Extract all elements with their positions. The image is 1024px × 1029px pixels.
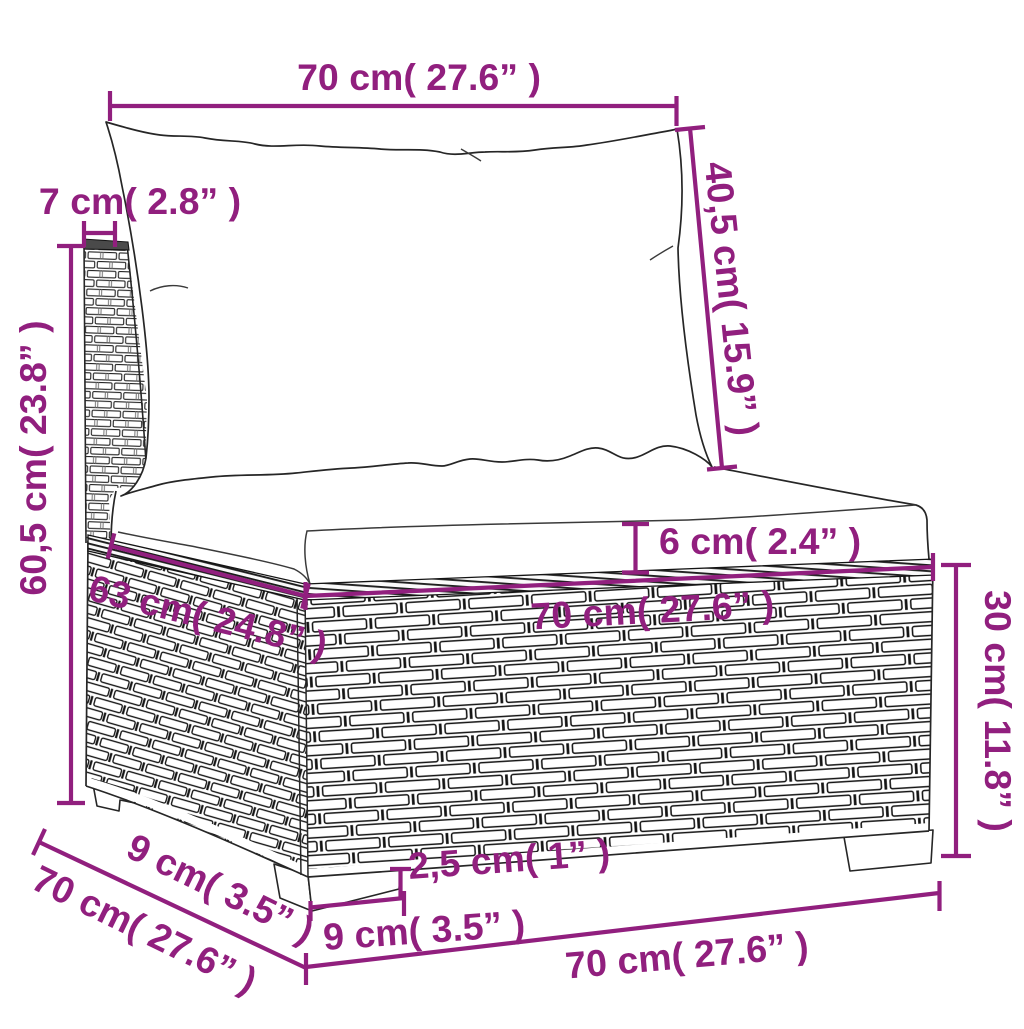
svg-text:30 cm( 11.8” ): 30 cm( 11.8” ) — [977, 590, 1019, 832]
svg-text:6 cm( 2.4” ): 6 cm( 2.4” ) — [659, 520, 861, 562]
svg-text:60,5 cm( 23.8” ): 60,5 cm( 23.8” ) — [12, 320, 54, 595]
svg-text:7 cm( 2.8” ): 7 cm( 2.8” ) — [39, 180, 241, 222]
svg-text:70 cm( 27.6” ): 70 cm( 27.6” ) — [297, 56, 541, 98]
svg-text:9 cm( 3.5” ): 9 cm( 3.5” ) — [322, 902, 527, 958]
